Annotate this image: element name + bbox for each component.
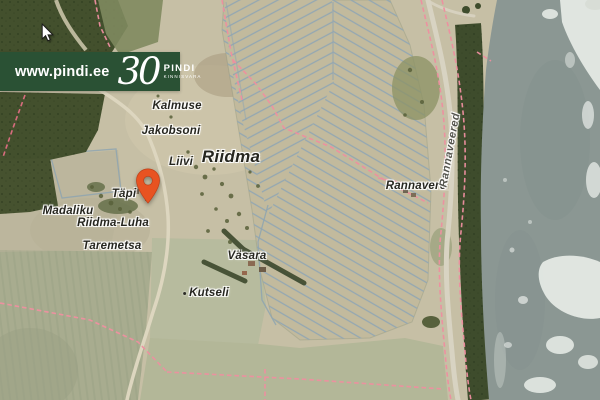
pindi-banner[interactable]: www.pindi.ee 30 PINDI KINNISVARA: [0, 52, 180, 91]
mouse-cursor-icon: [41, 23, 54, 42]
map-canvas[interactable]: Kalmuse Jakobsoni Liivi Riidma Täpi Mada…: [0, 0, 600, 400]
location-pin[interactable]: [135, 168, 161, 204]
brand-subtitle: KINNISVARA: [164, 75, 202, 80]
anniversary-30-logo: 30: [118, 52, 159, 91]
shore-trees: [462, 3, 481, 400]
brand-name: PINDI: [164, 64, 202, 74]
website-link[interactable]: www.pindi.ee: [15, 64, 110, 80]
